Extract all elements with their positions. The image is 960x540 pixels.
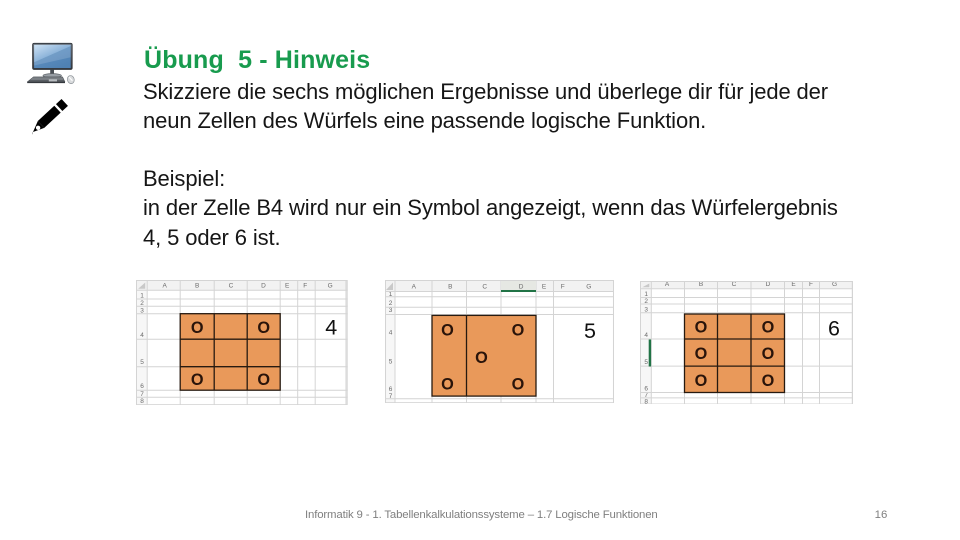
svg-text:G: G: [328, 283, 333, 290]
svg-text:A: A: [411, 284, 416, 291]
svg-text:5: 5: [644, 358, 648, 365]
svg-text:4: 4: [141, 332, 145, 339]
svg-text:O: O: [695, 318, 708, 336]
svg-text:A: A: [163, 283, 168, 290]
svg-text:5: 5: [584, 319, 596, 343]
svg-text:O: O: [762, 345, 775, 363]
svg-text:4: 4: [326, 316, 338, 340]
svg-text:O: O: [191, 371, 204, 389]
svg-text:E: E: [541, 284, 546, 291]
svg-text:F: F: [560, 284, 564, 291]
svg-text:C: C: [229, 283, 234, 290]
svg-text:F: F: [303, 283, 307, 290]
svg-text:G: G: [832, 281, 837, 288]
svg-text:O: O: [695, 345, 708, 363]
svg-text:O: O: [258, 371, 271, 389]
svg-text:8: 8: [141, 398, 145, 405]
svg-text:C: C: [482, 284, 487, 291]
svg-text:B: B: [699, 281, 703, 288]
svg-text:C: C: [732, 281, 737, 288]
svg-text:E: E: [285, 283, 290, 290]
svg-text:1: 1: [644, 291, 648, 298]
svg-text:1: 1: [141, 293, 145, 300]
svg-text:D: D: [518, 284, 523, 291]
svg-text:O: O: [441, 376, 454, 394]
svg-text:G: G: [586, 284, 591, 291]
svg-text:O: O: [762, 318, 775, 336]
svg-text:6: 6: [388, 386, 392, 393]
svg-text:5: 5: [388, 359, 392, 366]
svg-text:4: 4: [388, 330, 392, 337]
svg-text:O: O: [191, 319, 204, 337]
svg-text:O: O: [695, 371, 708, 389]
svg-text:B: B: [195, 283, 199, 290]
svg-text:O: O: [258, 319, 271, 337]
svg-text:B: B: [448, 284, 452, 291]
svg-text:D: D: [261, 283, 266, 290]
svg-text:O: O: [441, 322, 454, 340]
svg-text:O: O: [475, 349, 488, 367]
svg-text:2: 2: [388, 300, 392, 307]
svg-text:6: 6: [828, 316, 840, 340]
svg-text:O: O: [511, 376, 524, 394]
svg-text:O: O: [511, 322, 524, 340]
svg-text:D: D: [766, 281, 771, 288]
svg-text:F: F: [809, 281, 813, 288]
svg-text:A: A: [665, 281, 670, 288]
svg-text:O: O: [762, 371, 775, 389]
svg-text:4: 4: [644, 332, 648, 339]
svg-text:3: 3: [388, 307, 392, 314]
svg-text:E: E: [791, 281, 796, 288]
svg-text:5: 5: [141, 359, 145, 366]
svg-text:6: 6: [141, 383, 145, 390]
